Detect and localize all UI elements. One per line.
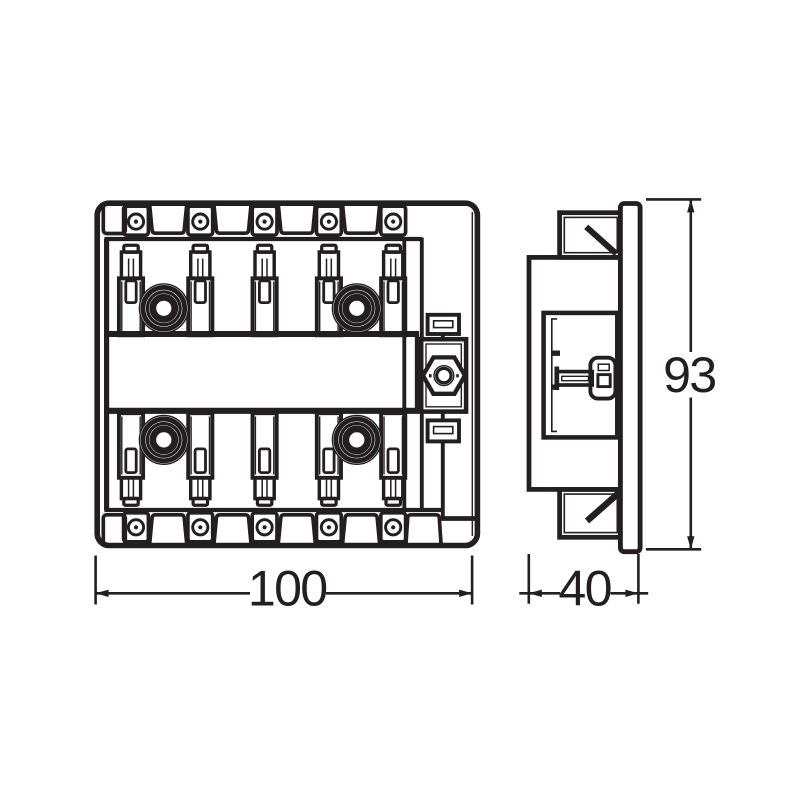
svg-text:93: 93 [663, 347, 715, 403]
svg-text:100: 100 [248, 561, 327, 617]
svg-text:40: 40 [558, 561, 610, 617]
